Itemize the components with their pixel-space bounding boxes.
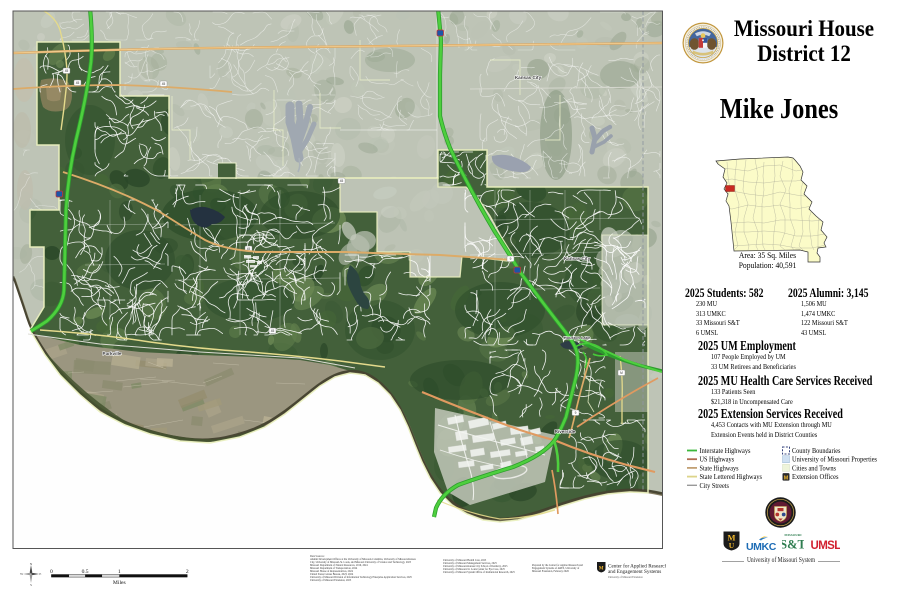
svg-text:45: 45 [65, 69, 69, 73]
svg-text:Extension Offices: Extension Offices [792, 473, 839, 481]
svg-text:9: 9 [510, 257, 512, 261]
svg-text:US Highways: US Highways [700, 456, 735, 464]
svg-text:45: 45 [76, 81, 80, 85]
svg-text:Riverside: Riverside [555, 429, 576, 434]
svg-text:State Lettered Highways: State Lettered Highways [700, 473, 763, 481]
svg-text:9: 9 [575, 411, 577, 415]
svg-text:1: 1 [118, 569, 121, 575]
svg-text:M: M [784, 475, 789, 481]
svg-text:N: N [30, 562, 33, 566]
svg-text:45: 45 [340, 179, 344, 183]
svg-text:0: 0 [50, 569, 53, 575]
svg-text:University of Missouri Propert: University of Missouri Properties [792, 456, 877, 464]
svg-text:45: 45 [162, 82, 166, 86]
svg-text:U: U [729, 541, 735, 550]
svg-text:M: M [599, 567, 604, 572]
svg-text:UMKC: UMKC [746, 541, 777, 553]
svg-text:Houston Lake: Houston Lake [564, 335, 591, 340]
svg-text:W: W [20, 572, 23, 576]
svg-text:Miles: Miles [113, 580, 126, 586]
svg-text:UMSL: UMSL [811, 540, 841, 552]
svg-text:Parkville: Parkville [103, 351, 122, 356]
svg-text:E: E [39, 572, 41, 576]
svg-text:Kansas City: Kansas City [515, 75, 542, 80]
svg-text:City Streets: City Streets [700, 482, 730, 490]
svg-text:and Engagement Systems: and Engagement Systems [608, 569, 661, 575]
svg-text:MISSOURI: MISSOURI [784, 533, 802, 537]
svg-text:Interstate Highways: Interstate Highways [700, 447, 751, 455]
svg-text:State Highways: State Highways [700, 464, 739, 472]
svg-text:University of Missouri Extensi: University of Missouri Extension [608, 576, 643, 579]
svg-text:Kansas City: Kansas City [564, 256, 591, 261]
svg-text:S: S [30, 583, 32, 586]
svg-text:Cities and Towns: Cities and Towns [792, 464, 836, 472]
svg-text:County Boundaries: County Boundaries [792, 447, 841, 455]
svg-text:2: 2 [186, 569, 189, 575]
svg-text:45: 45 [271, 329, 275, 333]
svg-text:S&T: S&T [782, 538, 804, 552]
svg-text:0.5: 0.5 [82, 569, 89, 575]
svg-text:M: M [620, 371, 623, 375]
